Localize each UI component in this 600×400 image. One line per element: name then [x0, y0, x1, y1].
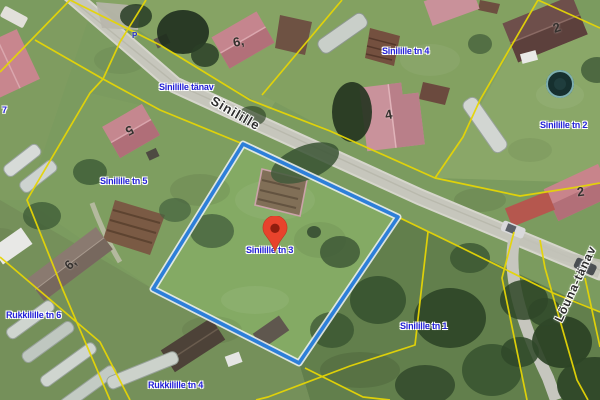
parking-symbol: P [132, 31, 137, 40]
map-canvas[interactable]: Sinilille tänav Sinilille Lõuna-tänav Si… [0, 0, 600, 400]
aerial-photo-layer [0, 0, 600, 400]
label-rukkilille-tn4: Rukkilille tn 4 [148, 380, 203, 390]
label-fragment-7: 7 [2, 105, 7, 115]
label-sinilille-tn4: Sinilille tn 4 [382, 46, 429, 56]
label-sinilille-tn2: Sinilille tn 2 [540, 120, 587, 130]
trampoline [546, 70, 574, 98]
label-sinilille-tn5: Sinilille tn 5 [100, 176, 147, 186]
location-marker[interactable] [261, 216, 289, 253]
label-sinilille-tn1: Sinilille tn 1 [400, 321, 447, 331]
label-sinilille-tanav: Sinilille tänav [159, 82, 214, 92]
label-rukkilille-tn6: Rukkilille tn 6 [6, 310, 61, 320]
